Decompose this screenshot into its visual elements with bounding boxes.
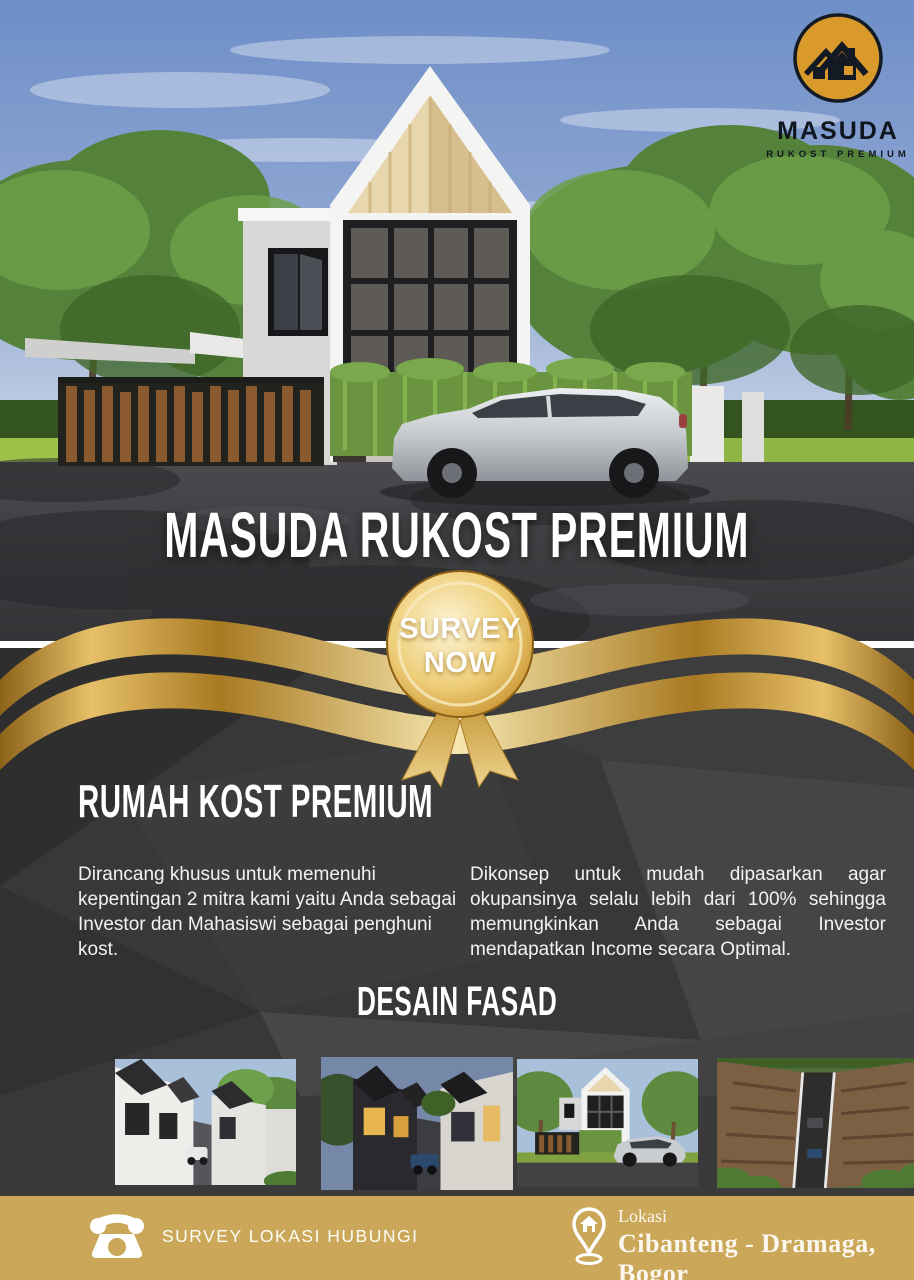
logo-house-icon [756, 8, 914, 108]
survey-now-badge[interactable]: SURVEY NOW [380, 556, 540, 788]
logo-tagline-text: RUKOST PREMIUM [756, 149, 914, 160]
gallery-thumb-street-dusk [321, 1057, 513, 1190]
hero-title: MASUDA RUKOST PREMIUM [0, 498, 914, 556]
location-label: Lokasi [618, 1206, 667, 1227]
footer-bar: SURVEY LOKASI HUBUNGI Lokasi Cibanteng -… [0, 1196, 914, 1280]
gallery-thumb-street-day [115, 1059, 296, 1185]
about-heading: RUMAH KOST PREMIUM [78, 775, 511, 817]
poster: MASUDA RUKOST PREMIUM MASUDA RUKOST PREM… [0, 0, 914, 1280]
gallery-thumb-aerial-view [717, 1058, 914, 1188]
gallery-thumb-front-facade [517, 1059, 698, 1187]
logo-brand-text: MASUDA [756, 117, 914, 146]
brand-logo: MASUDA RUKOST PREMIUM [756, 8, 914, 160]
hero-title-text: MASUDA RUKOST PREMIUM [164, 498, 749, 572]
location-pin-icon [570, 1205, 608, 1267]
phone-icon [88, 1210, 146, 1260]
survey-now-label: SURVEY NOW [380, 612, 540, 680]
about-paragraph-right: Dikonsep untuk mudah dipasarkan agar oku… [470, 862, 886, 962]
contact-label[interactable]: SURVEY LOKASI HUBUNGI [162, 1226, 418, 1247]
location-value: Cibanteng - Dramaga, Bogor [618, 1229, 914, 1280]
about-paragraph-left: Dirancang khusus untuk memenuhi kepentin… [78, 862, 458, 962]
gallery-heading: DESAIN FASAD [0, 978, 914, 1015]
